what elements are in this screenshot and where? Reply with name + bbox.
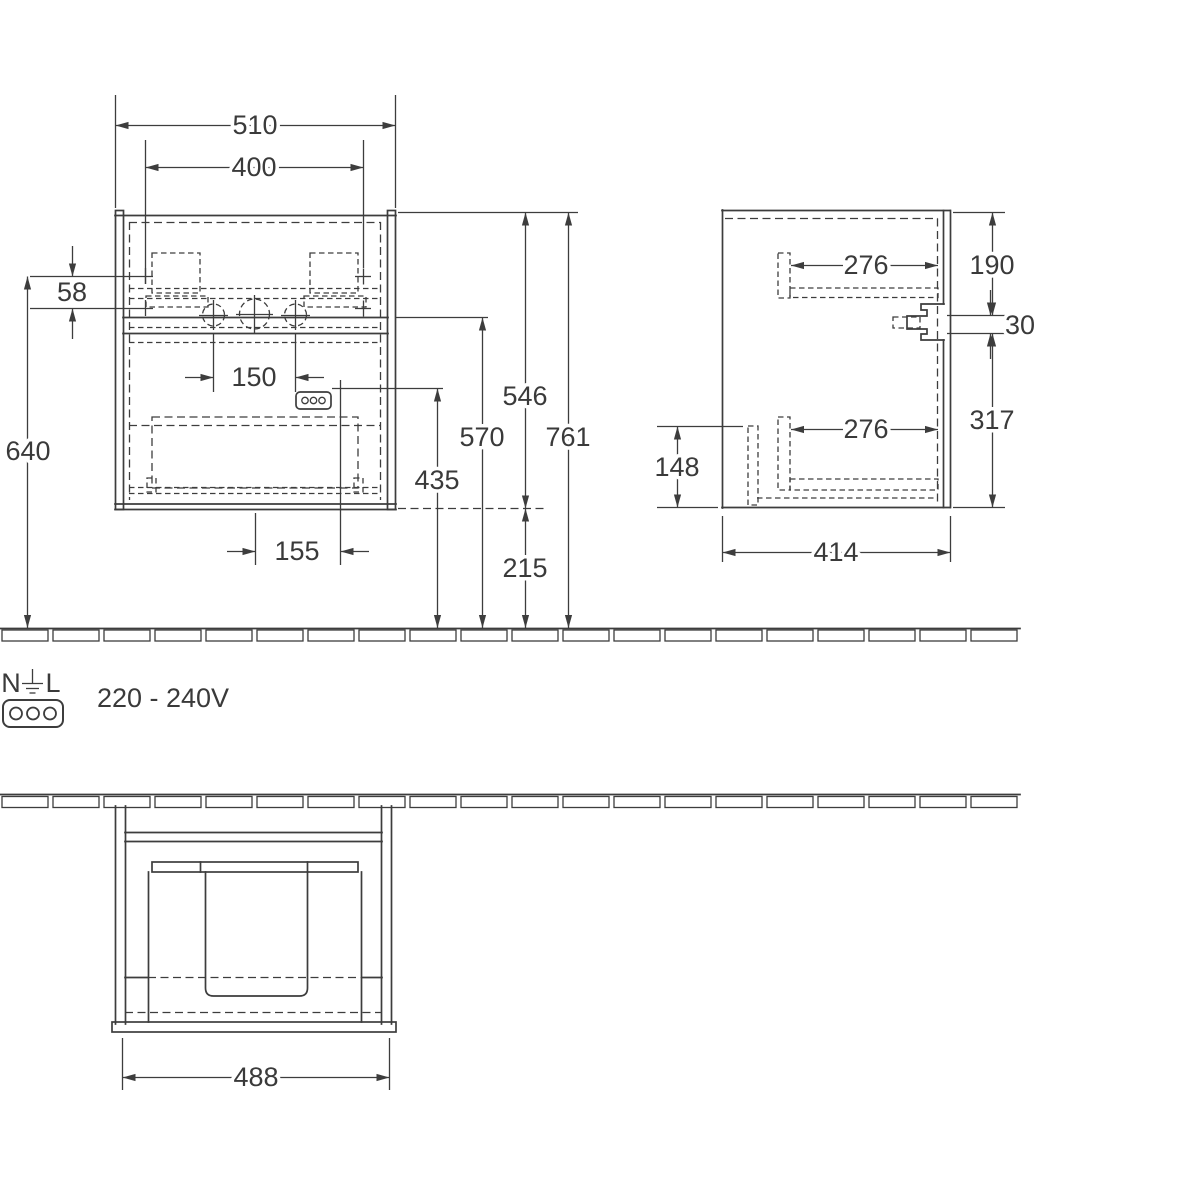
dim-front-tap-height: 570	[459, 422, 504, 452]
power-socket-icon	[3, 700, 63, 727]
drawing-canvas: 510 400 58 640 150 155 435 570	[0, 0, 1200, 1200]
socket-cutout-icon	[296, 392, 331, 409]
plan-view: 488	[112, 806, 396, 1092]
side-view-dimensions: 276 190 30 317 276 148 414	[654, 213, 1035, 568]
dim-plan-cutout-width: 488	[233, 1062, 278, 1092]
dim-side-lower-height: 148	[654, 452, 699, 482]
dim-side-lower-offset: 317	[969, 405, 1014, 435]
floor-hatch-line	[0, 629, 1020, 642]
dim-side-depth: 414	[813, 537, 858, 567]
dim-front-overall-width: 510	[232, 110, 277, 140]
earth-ground-icon	[22, 669, 43, 693]
side-panel-left	[116, 211, 124, 510]
fixing-cross-icon	[146, 268, 372, 317]
technical-drawing: 510 400 58 640 150 155 435 570	[0, 0, 1200, 1200]
fixing-bracket-right	[310, 253, 358, 293]
drawer-outline	[152, 417, 358, 488]
voltage-label: 220 - 240V	[97, 683, 229, 713]
dim-front-fixing-height: 640	[5, 436, 50, 466]
socket-legend: N L 220 - 240V	[1, 668, 229, 727]
neutral-label: N	[1, 668, 21, 698]
dim-front-tap-spacing: 150	[231, 362, 276, 392]
drawer-front-panel	[112, 1022, 396, 1032]
front-view-dimensions: 510 400 58 640 150 155 435 570	[5, 95, 590, 628]
front-view	[115, 211, 396, 510]
line-label: L	[45, 668, 60, 698]
dim-front-fixing-gap: 58	[57, 277, 87, 307]
drawer-rail	[152, 862, 358, 872]
dim-front-socket-height: 435	[414, 465, 459, 495]
wall-bracket-icon	[893, 304, 944, 340]
tap-hole-icon	[281, 300, 310, 330]
side-panel-right	[388, 211, 396, 510]
dim-front-clearance: 215	[502, 553, 547, 583]
tap-hole-icon	[199, 300, 228, 330]
dim-front-socket-offset: 155	[274, 536, 319, 566]
dim-front-total-height: 761	[545, 422, 590, 452]
wall-hatch-line	[0, 795, 1020, 808]
dim-front-fixing-width: 400	[231, 152, 276, 182]
dim-front-cabinet-height: 546	[502, 381, 547, 411]
dim-side-upper-depth: 276	[843, 250, 888, 280]
dim-side-bracket-height: 30	[1005, 310, 1035, 340]
dim-side-upper-offset: 190	[969, 250, 1014, 280]
fixing-bracket-left	[152, 253, 200, 293]
side-view	[722, 210, 951, 508]
dim-side-lower-depth: 276	[843, 414, 888, 444]
